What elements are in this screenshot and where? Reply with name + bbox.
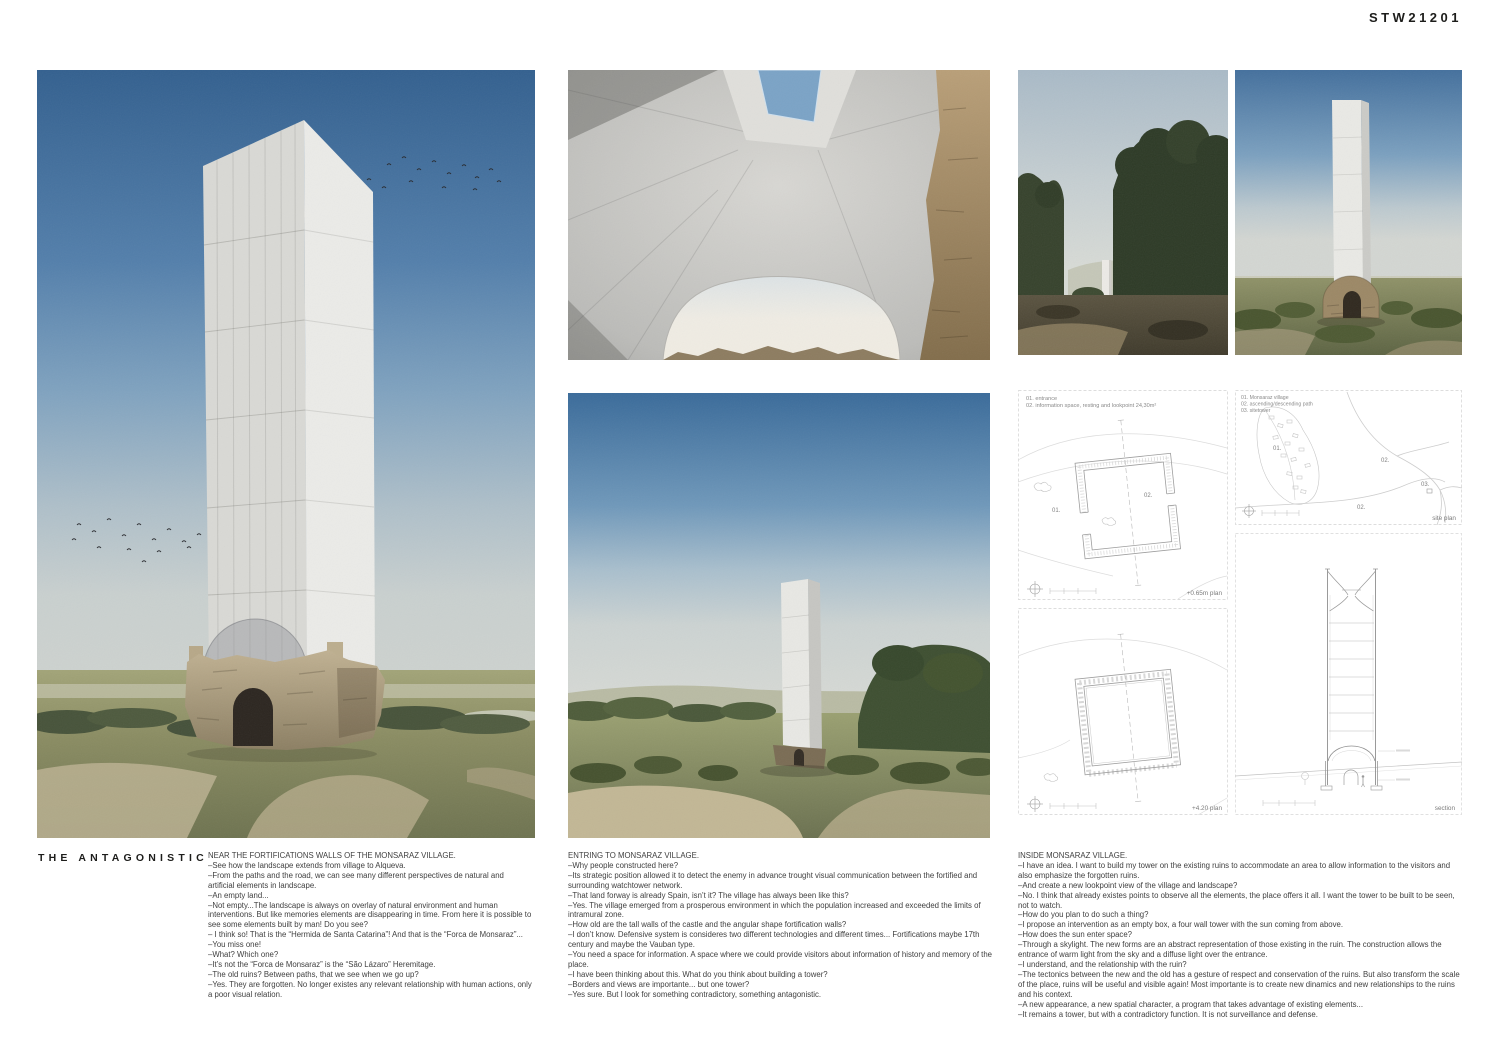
village-footprint	[1257, 407, 1319, 504]
skylight-funnel-section	[1328, 571, 1376, 611]
plan-walls	[1071, 629, 1184, 806]
text-column-2: ENTRING TO MONSARAZ VILLAGE. –Why people…	[568, 851, 993, 1000]
dialogue-line: –The old ruins? Between paths, that we s…	[208, 970, 532, 980]
drawing-plan-420-art: +4.20 plan	[1018, 608, 1228, 815]
dialogue-line: – I think so! That is the “Hermida de Sa…	[208, 930, 532, 940]
dialogue-line: –How does the sun enter space?	[1018, 930, 1465, 940]
dialogue-line: –Yes. They are forgotten. No longer exis…	[208, 980, 532, 1000]
drawing-section-art: section	[1235, 533, 1462, 815]
photo-tower-interior	[568, 70, 990, 360]
north-arrow	[1027, 796, 1043, 812]
plan065-label-01: 01.	[1052, 508, 1061, 514]
scale-bar	[1050, 803, 1096, 809]
drawing-site-plan-art: 01. Monsaraz village 02. ascending/desce…	[1235, 390, 1462, 525]
dialogue-line: –And create a new lookpoint view of the …	[1018, 881, 1465, 891]
board-code: STW21201	[1369, 10, 1462, 25]
photo-tower-landscape	[568, 393, 990, 838]
dialogue-line: –You need a space for information. A spa…	[568, 950, 993, 970]
plan065-legend-2: 02. information space, resting and lookp…	[1026, 403, 1156, 409]
tree-sketch	[1302, 773, 1309, 786]
drawing-plan-065-art: 01. entrance 02. information space, rest…	[1018, 390, 1228, 600]
north-arrow	[1027, 581, 1043, 597]
photo-tower-main-art	[37, 70, 535, 838]
tower-section	[1321, 569, 1382, 790]
photo-tower-landscape-art	[568, 393, 990, 838]
dialogue-line: –The tectonics between the new and the o…	[1018, 970, 1465, 1000]
dialogue-line: –A new appearance, a new spatial charact…	[1018, 1000, 1465, 1010]
dialogue-line: –I propose an intervention as an empty b…	[1018, 920, 1465, 930]
siteplan-legend-1: 01. Monsaraz village	[1241, 395, 1289, 401]
dialogue-line: –I understand, and the relationship with…	[1018, 960, 1465, 970]
annotation-leaders	[1378, 750, 1410, 781]
photo-tower-on-ruin	[1235, 70, 1462, 355]
dialogue-line: –Through a skylight. The new forms are a…	[1018, 940, 1465, 960]
dialogue-line: –It remains a tower, but with a contradi…	[1018, 1010, 1465, 1020]
siteplan-caption: site plan	[1432, 515, 1456, 522]
drawing-plan-420: +4.20 plan	[1018, 608, 1228, 815]
section-caption: section	[1435, 805, 1456, 812]
floor-ties	[1329, 623, 1374, 731]
dialogue-line: –You miss one!	[208, 940, 532, 950]
dialogue-line: –It’s not the “Forca de Monsaraz” is the…	[208, 960, 532, 970]
contour-lines	[1018, 639, 1227, 815]
scale-bar	[1262, 510, 1299, 516]
scale-bar	[1263, 800, 1315, 806]
dialogue-line: –That land forway is already Spain, isn’…	[568, 891, 993, 901]
text-column-3: INSIDE MONSARAZ VILLAGE. –I have an idea…	[1018, 851, 1465, 1019]
siteplan-label-01: 01.	[1273, 446, 1282, 452]
photo-tower-main	[37, 70, 535, 838]
presentation-board: STW21201	[0, 0, 1500, 1059]
dialogue-line: –Borders and views are importante... but…	[568, 980, 993, 990]
entrance-arch-section	[1344, 770, 1358, 785]
siteplan-legend-3: 03. sitetower	[1241, 408, 1271, 414]
plan420-caption: +4.20 plan	[1192, 805, 1222, 812]
photo-tower-on-ruin-art	[1235, 70, 1462, 355]
siteplan-label-03: 03.	[1421, 482, 1430, 488]
column-heading: NEAR THE FORTIFICATIONS WALLS OF THE MON…	[208, 851, 532, 861]
panel-border	[1236, 534, 1462, 815]
plan065-label-02: 02.	[1144, 493, 1153, 499]
dialogue-line: –Why people constructed here?	[568, 861, 993, 871]
dialogue-line: –Yes sure. But I look for something cont…	[568, 990, 993, 1000]
drawing-site-plan: 01. Monsaraz village 02. ascending/desce…	[1235, 390, 1462, 525]
dialogue-line: –What? Which one?	[208, 950, 532, 960]
dialogue-line: –From the paths and the road, we can see…	[208, 871, 532, 891]
dialogue-line: –How old are the tall walls of the castl…	[568, 920, 993, 930]
column-heading: ENTRING TO MONSARAZ VILLAGE.	[568, 851, 993, 861]
siteplan-legend-2: 02. ascending/descending path	[1241, 402, 1313, 408]
plan065-caption: +0.65m plan	[1187, 590, 1223, 597]
dialogue-line: –Not empty...The landscape is always on …	[208, 901, 532, 931]
text-column-1: NEAR THE FORTIFICATIONS WALLS OF THE MON…	[208, 851, 532, 1000]
dialogue-line: –Its strategic position allowed it to de…	[568, 871, 993, 891]
scale-bar	[1050, 588, 1096, 594]
sitetower-marker	[1427, 489, 1432, 493]
photo-tower-interior-art	[568, 70, 990, 360]
column-heading: INSIDE MONSARAZ VILLAGE.	[1018, 851, 1465, 861]
human-figure	[1362, 775, 1365, 787]
ground-line	[1235, 762, 1462, 780]
dialogue-line: –I don’t know. Defensive system is consi…	[568, 930, 993, 950]
dialogue-line: –See how the landscape extends from vill…	[208, 861, 532, 871]
dialogue-line: –I have an idea. I want to build my towe…	[1018, 861, 1465, 881]
siteplan-label-02a: 02.	[1381, 458, 1390, 464]
dialogue-line: –No. I think that already existes points…	[1018, 891, 1465, 911]
plan065-legend-1: 01. entrance	[1026, 396, 1057, 402]
board-title: THE ANTAGONISTIC	[38, 852, 208, 864]
photo-distant-tower-trees	[1018, 70, 1228, 355]
dialogue-line: –How do you plan to do such a thing?	[1018, 910, 1465, 920]
dialogue-line: –Yes. The village emerged from a prosper…	[568, 901, 993, 921]
photo-distant-tower-trees-art	[1018, 70, 1228, 355]
dome-section	[1328, 746, 1375, 761]
siteplan-label-02b: 02.	[1357, 505, 1366, 511]
rock-sketch	[1044, 774, 1058, 782]
dialogue-line: –I have been thinking about this. What d…	[568, 970, 993, 980]
drawing-plan-065: 01. entrance 02. information space, rest…	[1018, 390, 1228, 600]
dialogue-line: –An empty land...	[208, 891, 532, 901]
drawing-section: section	[1235, 533, 1462, 815]
plan-walls	[1069, 415, 1185, 590]
